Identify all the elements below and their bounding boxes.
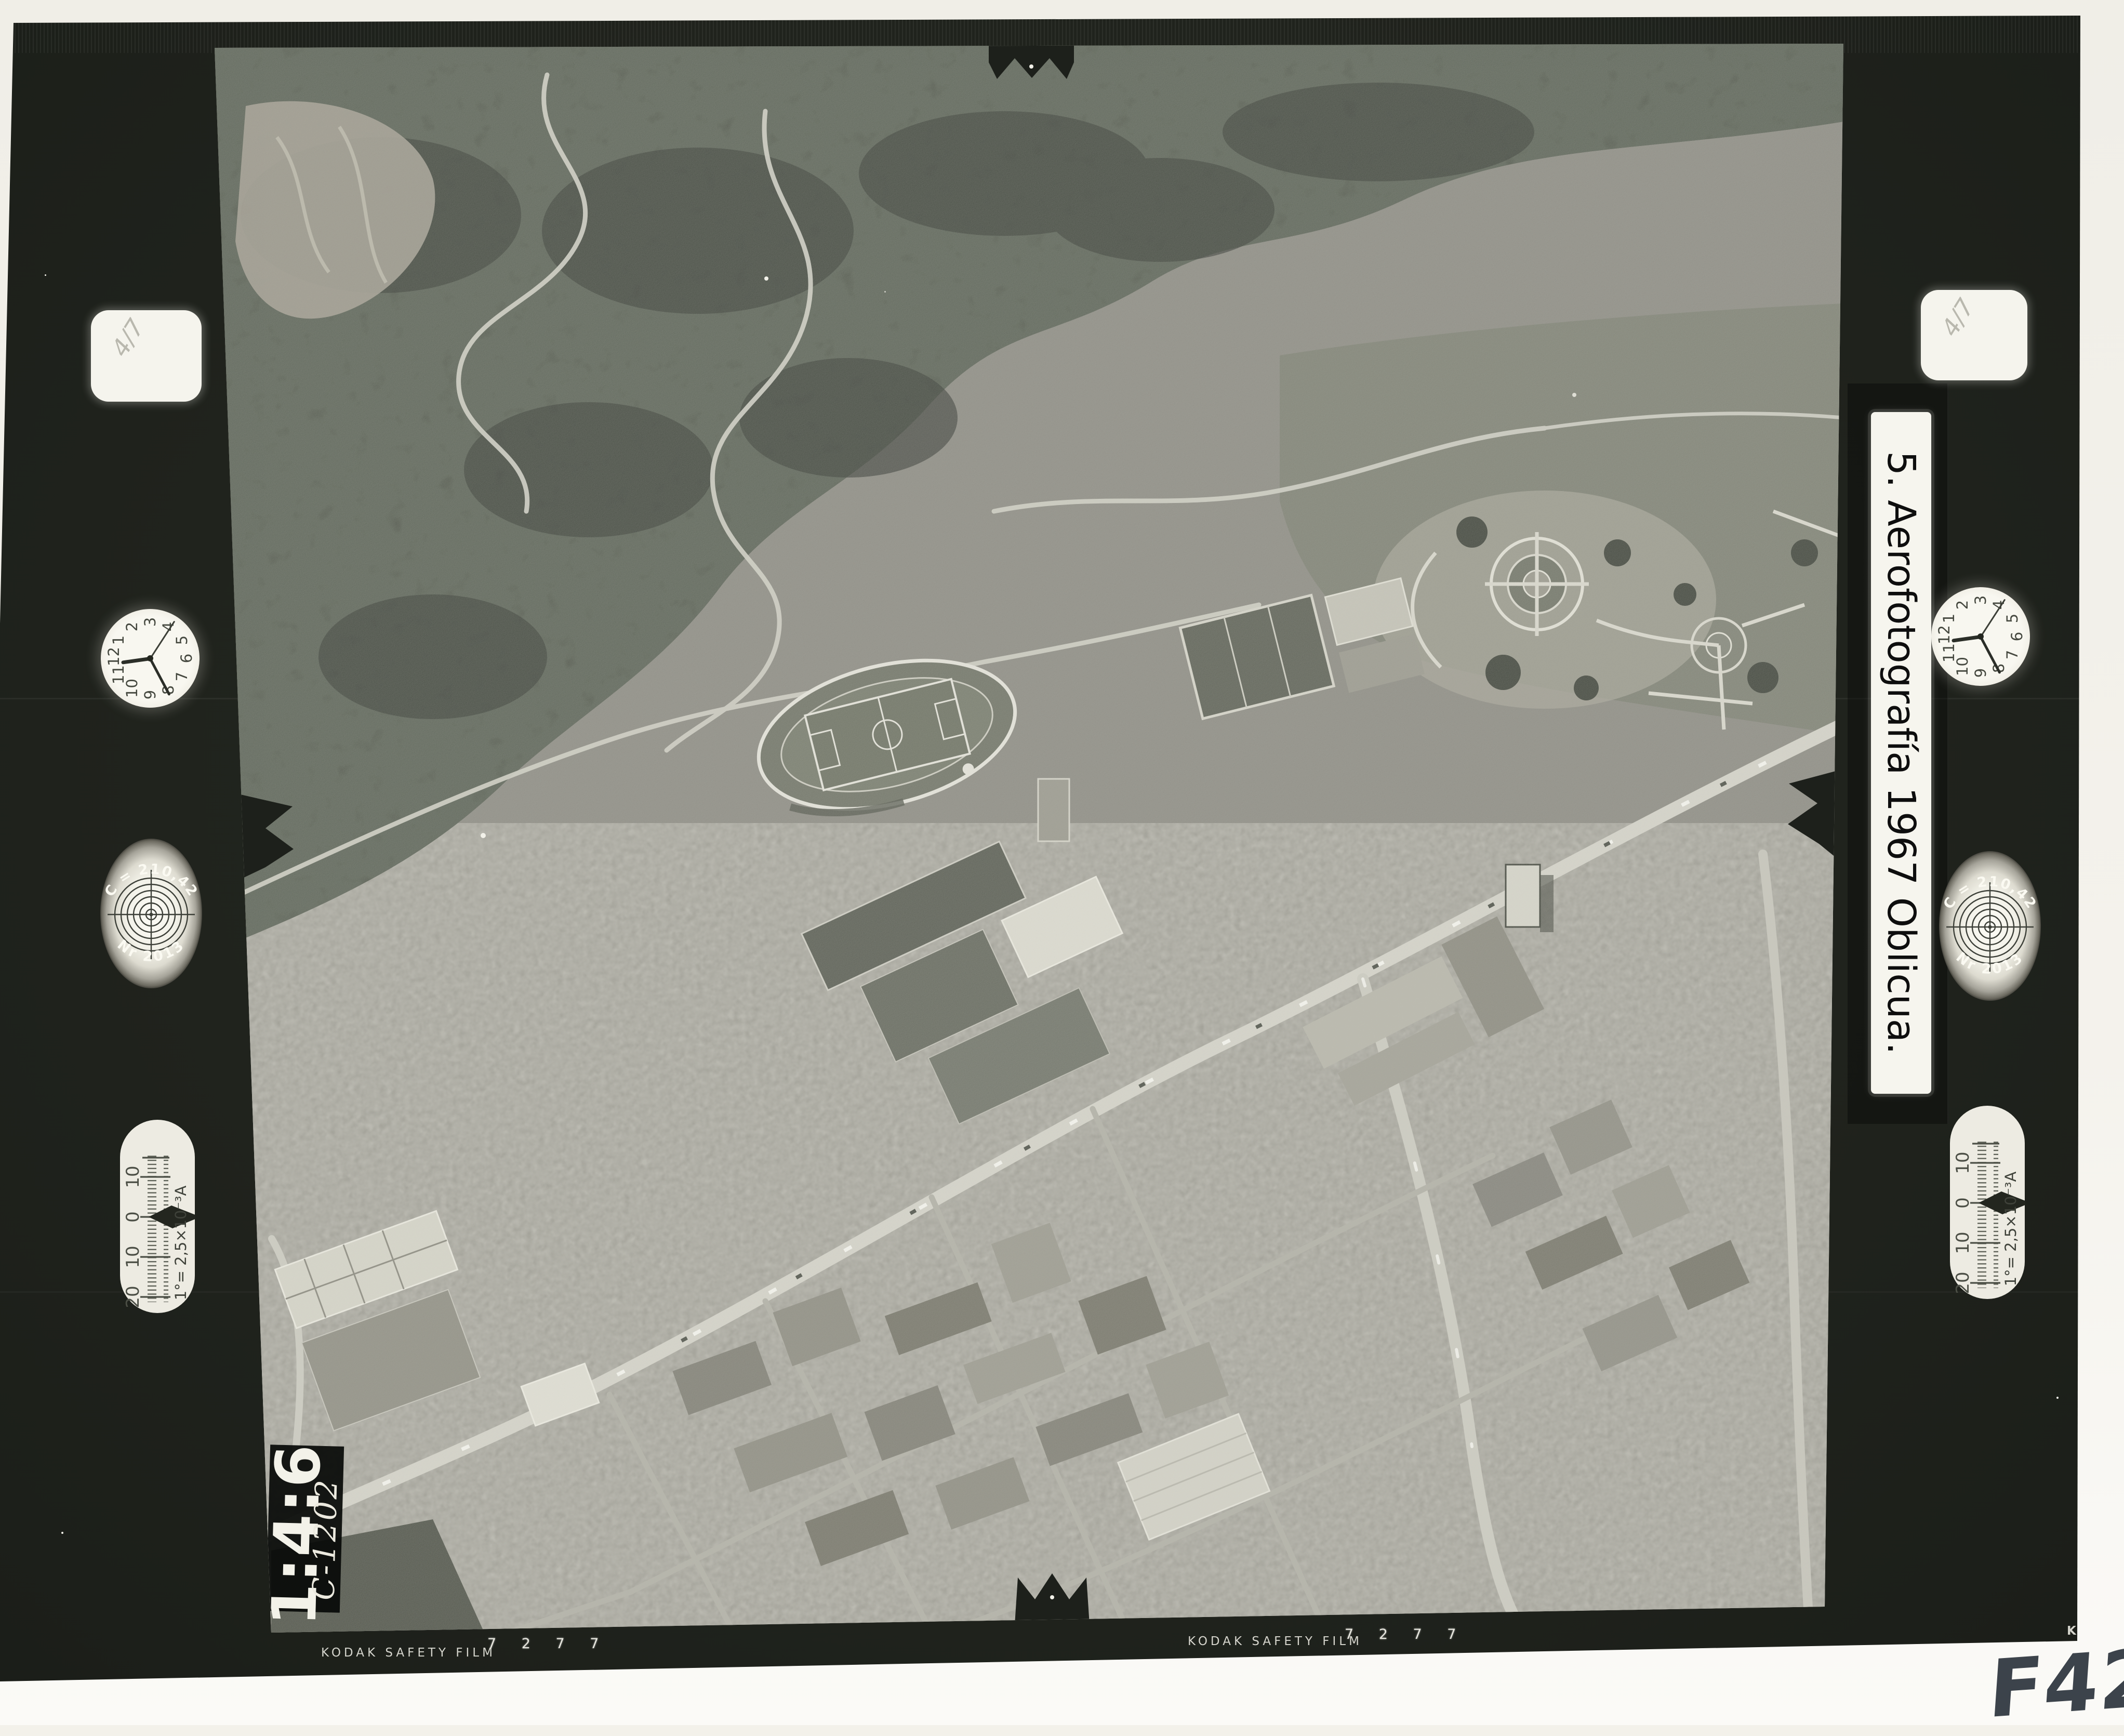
tilt-gauge-left: 10 0 10 20 1°= 2,5×10⁻³A <box>118 1118 196 1315</box>
kodak-edge-print-partial: KO <box>2067 1624 2088 1638</box>
clock-pin <box>147 655 153 661</box>
aerial-photograph: 1:4:6 C-1202 <box>215 44 1846 1634</box>
dust-speck <box>2056 1397 2059 1399</box>
kodak-edge-print: KODAK SAFETY FILM <box>1188 1635 1362 1648</box>
svg-text:1°= 2,5×10⁻³A: 1°= 2,5×10⁻³A <box>2002 1172 2020 1287</box>
frame-number-handwritten: C-1202 <box>308 1466 342 1612</box>
frame-counter-block: 1:4:6 C-1202 <box>266 1445 344 1613</box>
film-sheet: 1:4:6 C-1202 4/7 12 1 2 3 4 5 6 7 8 9 10… <box>0 0 2124 1725</box>
archive-label-text: 5. Aerofotografía 1967 Oblicua. <box>1871 412 1931 1094</box>
pencil-note: 4/7 <box>106 314 150 361</box>
calibration-patch-right: 4/7 <box>1921 290 2027 380</box>
scanned-aerial-film-sheet: 1:4:6 C-1202 4/7 12 1 2 3 4 5 6 7 8 9 10… <box>0 0 2124 1725</box>
svg-text:20: 20 <box>123 1286 143 1308</box>
mission-clock-right: 12 1 2 3 4 5 6 7 8 9 10 11 <box>1931 587 2030 686</box>
clock-pin <box>1977 633 1984 640</box>
aerial-photo-art <box>215 44 1846 1634</box>
catalog-number-handwritten: F423 <box>1986 1627 2124 1735</box>
svg-text:0: 0 <box>123 1211 143 1223</box>
svg-text:10: 10 <box>123 1245 143 1268</box>
dust-speck <box>884 291 886 293</box>
svg-text:0: 0 <box>1953 1197 1973 1209</box>
dust-speck <box>61 1532 63 1534</box>
frame-tick-marks: 7 2 7 7 <box>1345 1626 1466 1642</box>
svg-text:10: 10 <box>123 1165 143 1188</box>
svg-text:20: 20 <box>1953 1271 1973 1294</box>
archive-label: 5. Aerofotografía 1967 Oblicua. <box>1871 412 1931 1094</box>
kodak-edge-print: KODAK SAFETY FILM <box>321 1646 496 1660</box>
pencil-note: 4/7 <box>1936 294 1980 341</box>
frame-tick-marks: 7 2 7 7 <box>487 1636 609 1652</box>
calibration-patch-left: 4/7 <box>91 310 202 402</box>
svg-text:10: 10 <box>1953 1151 1973 1174</box>
tilt-gauge-right: 10 0 10 20 1°= 2,5×10⁻³A <box>1948 1104 2026 1301</box>
gauge-caption: 1°= 2,5×10⁻³A <box>172 1186 190 1301</box>
mission-clock-left: 12 1 2 3 4 5 6 7 8 9 10 11 <box>101 609 200 708</box>
svg-text:10: 10 <box>1953 1231 1973 1254</box>
dust-speck <box>45 274 46 276</box>
camera-constant-disc-right: C = 210,42 Nr 2013 <box>1938 850 2042 1002</box>
camera-constant-disc-left: C = 210,42 Nr 2013 <box>99 838 203 989</box>
